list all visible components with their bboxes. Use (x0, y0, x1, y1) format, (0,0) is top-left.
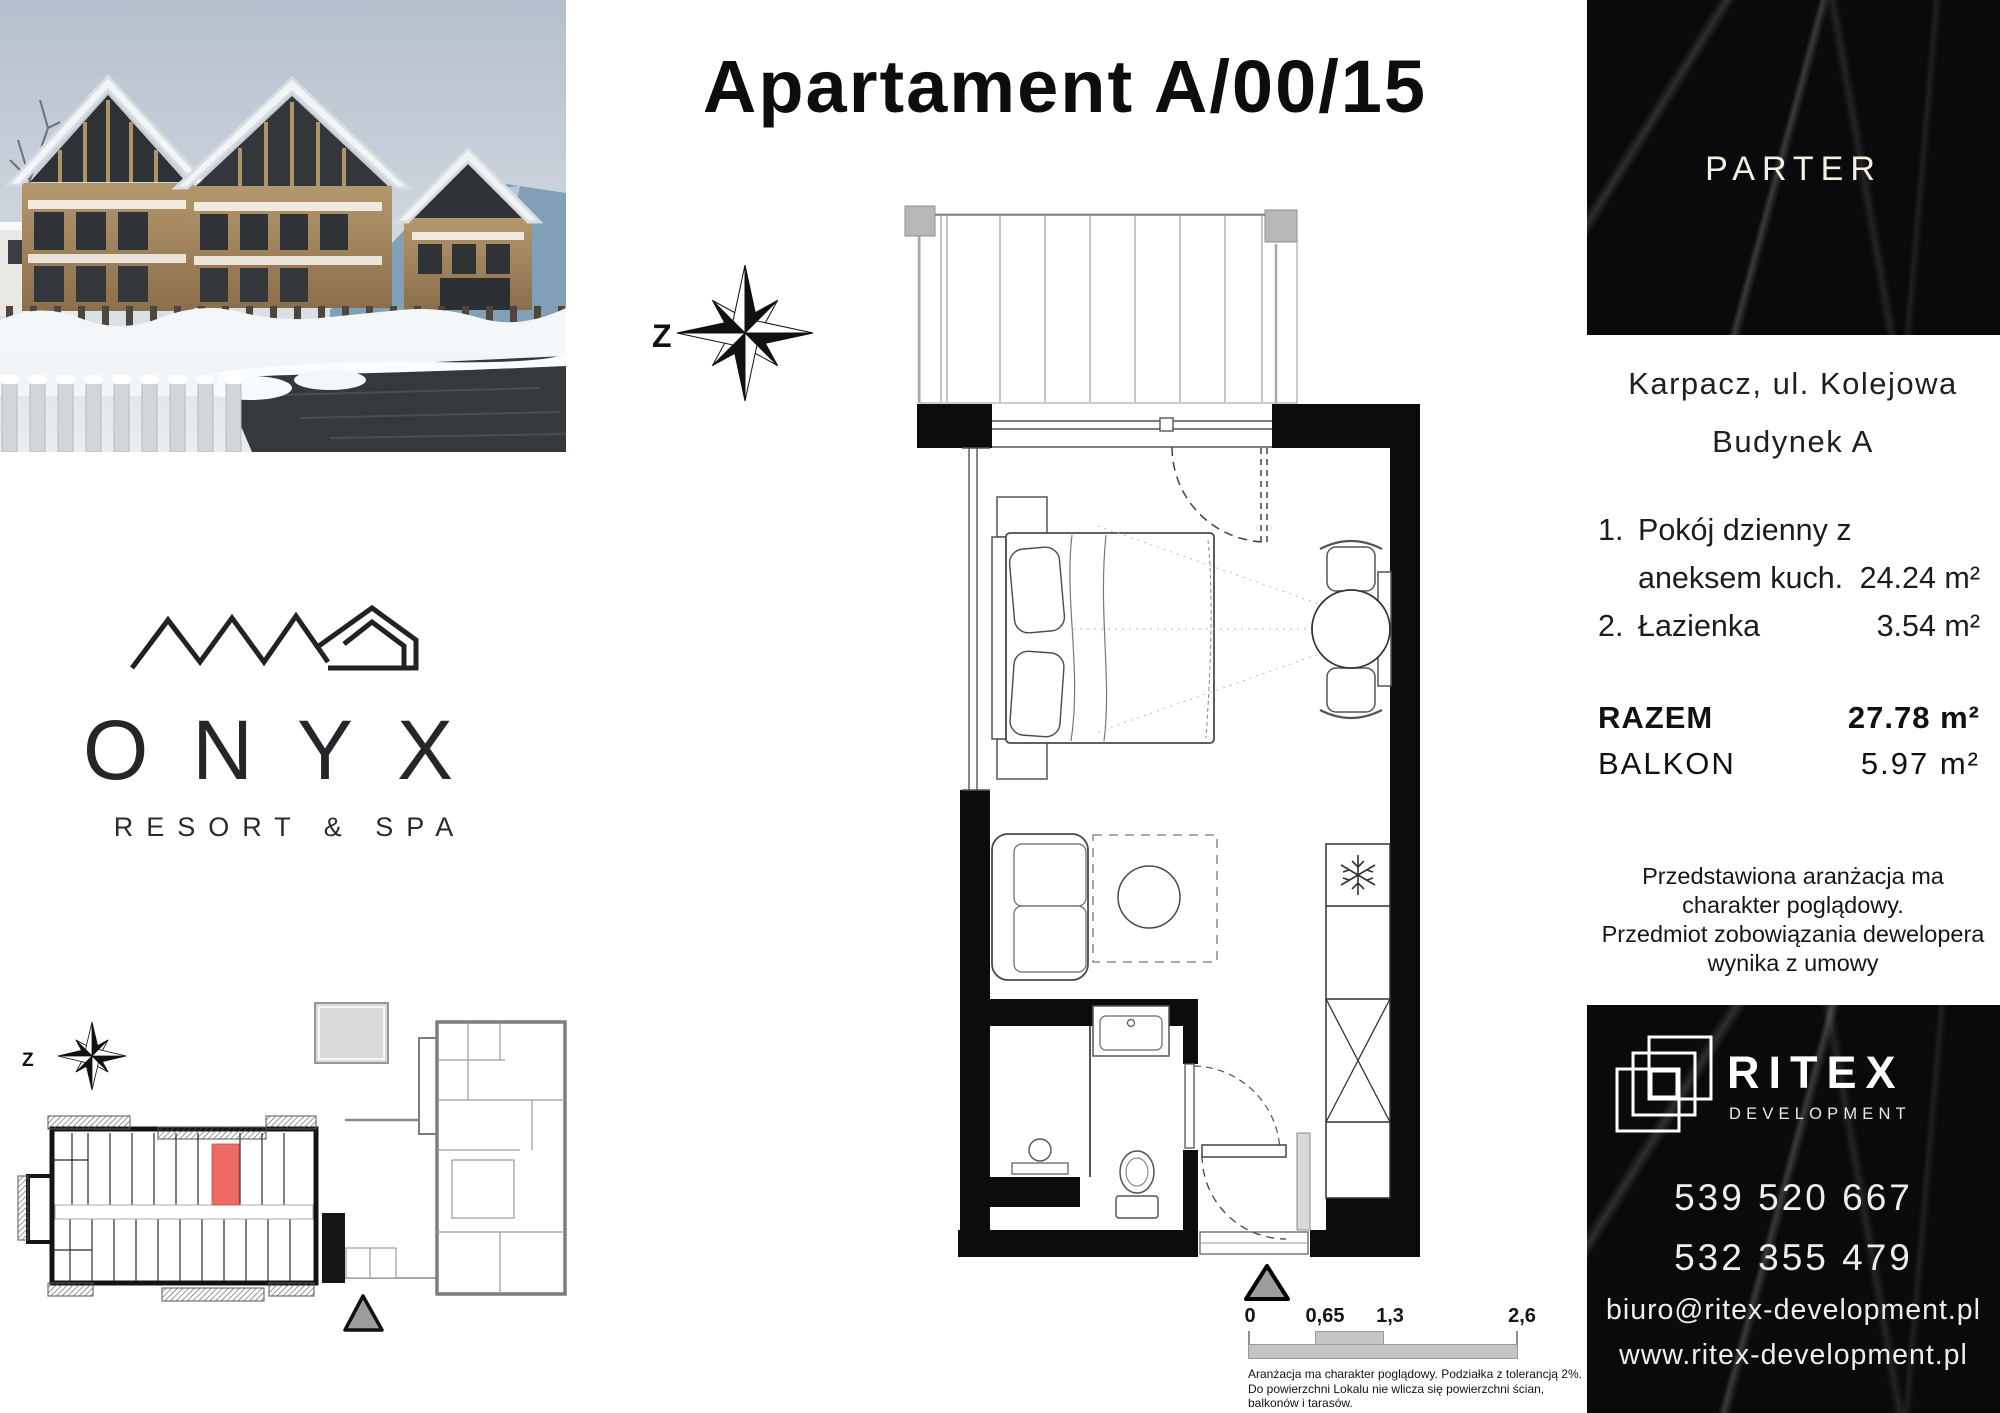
chair (1327, 547, 1375, 591)
brand-subtitle: RESORT & SPA (20, 812, 560, 843)
foreground-fence (0, 375, 243, 452)
fine-print-line2: Do powierzchni Lokalu nie wlicza się pow… (1248, 1382, 1593, 1411)
dining-table (1312, 590, 1390, 668)
phone-number-1: 539 520 667 (1587, 1177, 2000, 1219)
porch-block (322, 1213, 345, 1283)
brand-name: ONYX (20, 702, 560, 799)
highlighted-unit[interactable] (212, 1144, 239, 1205)
sofa (992, 834, 1088, 980)
window (118, 266, 148, 302)
snow-lump (294, 370, 366, 390)
site-building-a (18, 1116, 382, 1330)
arrangement-disclaimer: Przedstawiona aranżacja ma charakter pog… (1578, 862, 2000, 978)
resort-photo (0, 0, 566, 452)
room-row: 1. Pokój dzienny z (1598, 506, 1980, 554)
sink-vanity (1093, 1006, 1169, 1056)
chair (1327, 668, 1375, 712)
site-compass-west-label: Z (22, 1050, 34, 1071)
total-label: RAZEM (1598, 695, 1713, 741)
balcony-window (992, 418, 1272, 447)
disclaimer-line: Przedstawiona aranżacja ma (1578, 862, 2000, 891)
scale-segment-bottom (1248, 1344, 1518, 1359)
floor-label: PARTER (1587, 150, 2000, 189)
bathroom-door-leaf (1185, 1064, 1194, 1148)
window (240, 268, 268, 302)
balcony-band (412, 232, 524, 240)
window (452, 244, 476, 274)
site-compass-icon: Z (22, 1022, 126, 1090)
address-line1: Karpacz, ul. Kolejowa (1585, 366, 2000, 402)
pillow (1008, 546, 1065, 634)
scale-label-065: 0,65 (1306, 1305, 1345, 1328)
website-link[interactable]: www.ritex-development.pl (1587, 1339, 2000, 1372)
window (280, 268, 308, 302)
totals: RAZEM 27.78 m² BALKON 5.97 m² (1598, 695, 1980, 787)
address-line2: Budynek A (1585, 424, 2000, 460)
compass-rose-icon: Z (600, 240, 840, 430)
window (76, 266, 106, 302)
room-area: 24.24 m² (1860, 554, 1980, 602)
room-row: aneksem kuch. 24.24 m² (1598, 554, 1980, 602)
room-area: 3.54 m² (1877, 602, 1980, 650)
page-title: Apartament A/00/15 (600, 44, 1530, 129)
window (76, 212, 106, 250)
window (486, 244, 510, 274)
balcony-post (905, 206, 935, 236)
entrance-dark (440, 278, 510, 310)
scale-label-13: 1,3 (1376, 1305, 1404, 1328)
room-number-spacer (1598, 554, 1638, 602)
window (34, 212, 64, 250)
window (118, 212, 148, 250)
window (240, 214, 268, 250)
entrance-marker-triangle (1246, 1266, 1288, 1299)
entry-door-swing (1202, 1155, 1286, 1239)
compass-mains (677, 265, 813, 401)
developer-name: RITEX (1727, 1047, 1905, 1099)
site-entrance-triangle (345, 1296, 382, 1330)
floor-panel: PARTER (1587, 0, 2000, 335)
room-number: 1. (1598, 506, 1638, 554)
developer-panel: RITEX DEVELOPMENT 539 520 667 532 355 47… (1587, 1005, 2000, 1413)
coffee-table (1118, 866, 1180, 928)
window (280, 214, 308, 250)
balcony-band (28, 254, 186, 263)
pillow (1009, 650, 1065, 737)
disclaimer-line: wynika z umowy (1578, 949, 2000, 978)
balcony-post (1265, 210, 1297, 242)
phone-number-2: 532 355 479 (1587, 1237, 2000, 1279)
nightstand (997, 497, 1047, 537)
window (34, 266, 64, 302)
balcony-label: BALKON (1598, 741, 1736, 787)
fine-print: Aranżacja ma charakter poglądowy. Podzia… (1248, 1367, 1593, 1411)
room-name: Łazienka (1638, 602, 1877, 650)
room-list: 1. Pokój dzienny z aneksem kuch. 24.24 m… (1598, 506, 1980, 650)
entry (1200, 1133, 1310, 1299)
corridor (55, 1205, 313, 1219)
scale-label-0: 0 (1244, 1305, 1255, 1328)
window (200, 214, 228, 250)
compass-west-label: Z (652, 318, 672, 354)
window (320, 214, 348, 250)
toilet-tank (1116, 1196, 1158, 1218)
window (418, 244, 442, 274)
window (200, 268, 228, 302)
site-pool (315, 1003, 388, 1063)
room-name: Pokój dzienny z (1638, 506, 1980, 554)
room-row: 2. Łazienka 3.54 m² (1598, 602, 1980, 650)
email-link[interactable]: biuro@ritex-development.pl (1587, 1294, 2000, 1327)
washbasin (1029, 1139, 1051, 1161)
scale-bar: 0 0,65 1,3 2,6 Aranżacja ma charakter po… (1240, 1305, 1590, 1413)
disclaimer-line: Przedmiot zobowiązania dewelopera (1578, 920, 2000, 949)
nightstand (997, 739, 1047, 779)
developer-name-sub: DEVELOPMENT (1729, 1105, 1911, 1124)
snow-lump (208, 376, 292, 400)
ritex-logo-icon (1615, 1035, 1715, 1147)
balcony-row: BALKON 5.97 m² (1598, 741, 1980, 787)
total-value: 27.78 m² (1848, 695, 1980, 741)
basin-stand (1012, 1163, 1068, 1174)
balcony-band (194, 202, 382, 211)
disclaimer-line: charakter poglądowy. (1578, 891, 2000, 920)
toilet-bowl (1120, 1151, 1154, 1193)
total-row: RAZEM 27.78 m² (1598, 695, 1980, 741)
balcony-band (28, 200, 186, 209)
balcony (905, 206, 1297, 403)
site-plan: Z (15, 995, 590, 1360)
scale-label-26: 2,6 (1508, 1305, 1536, 1328)
onyx-logo-icon (120, 570, 440, 680)
bathroom-door-swing (1194, 1066, 1280, 1154)
headboard (992, 537, 1006, 739)
bed (992, 497, 1214, 779)
balcony-door-swing (1172, 447, 1267, 543)
side-panel (1297, 1133, 1310, 1230)
balcony-band (194, 256, 382, 265)
entry-door-leaf (1202, 1145, 1286, 1157)
room-number: 2. (1598, 602, 1638, 650)
balcony-value: 5.97 m² (1861, 741, 1980, 787)
room-name: aneksem kuch. (1638, 554, 1860, 602)
floor-plan (850, 190, 1450, 1310)
left-window (962, 448, 990, 790)
fine-print-line1: Aranżacja ma charakter poglądowy. Podzia… (1248, 1367, 1593, 1382)
kitchen-column (1326, 844, 1390, 1198)
